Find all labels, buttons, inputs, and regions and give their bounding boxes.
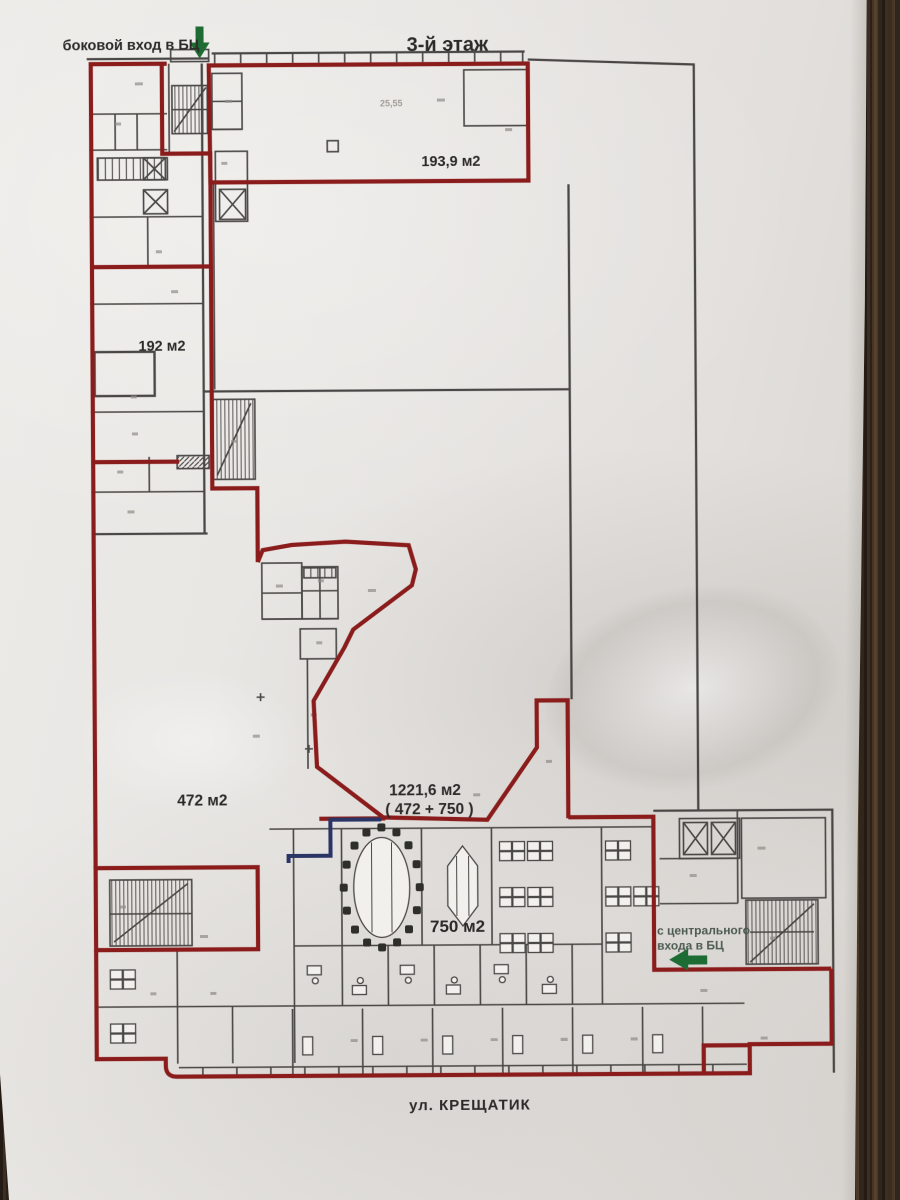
room-dimension-note: 25,55	[380, 98, 403, 108]
area-label-192: 192 м2	[138, 339, 185, 355]
central-entrance-label-line2: входа в БЦ	[657, 938, 724, 952]
central-entrance-label-line1: с центрального	[657, 923, 750, 938]
labels-layer: боковой вход в БЦ 3-й этаж 193,9 м2 25,5…	[63, 32, 752, 1116]
area-label-193: 193,9 м2	[421, 154, 480, 170]
area-label-1221: 1221,6 м2	[389, 782, 461, 799]
area-label-1221-note: ( 472 + 750 )	[385, 801, 473, 819]
area-label-472: 472 м2	[177, 792, 227, 809]
area-label-750: 750 м2	[430, 917, 485, 936]
street-label: ул. КРЕЩАТИК	[409, 1097, 531, 1115]
floor-title: 3-й этаж	[407, 34, 489, 57]
side-entrance-label: боковой вход в БЦ	[63, 38, 200, 55]
photo-of-floor-plan: боковой вход в БЦ 3-й этаж 193,9 м2 25,5…	[0, 0, 900, 1200]
floor-plan-drawing: боковой вход в БЦ 3-й этаж 193,9 м2 25,5…	[0, 0, 900, 1200]
